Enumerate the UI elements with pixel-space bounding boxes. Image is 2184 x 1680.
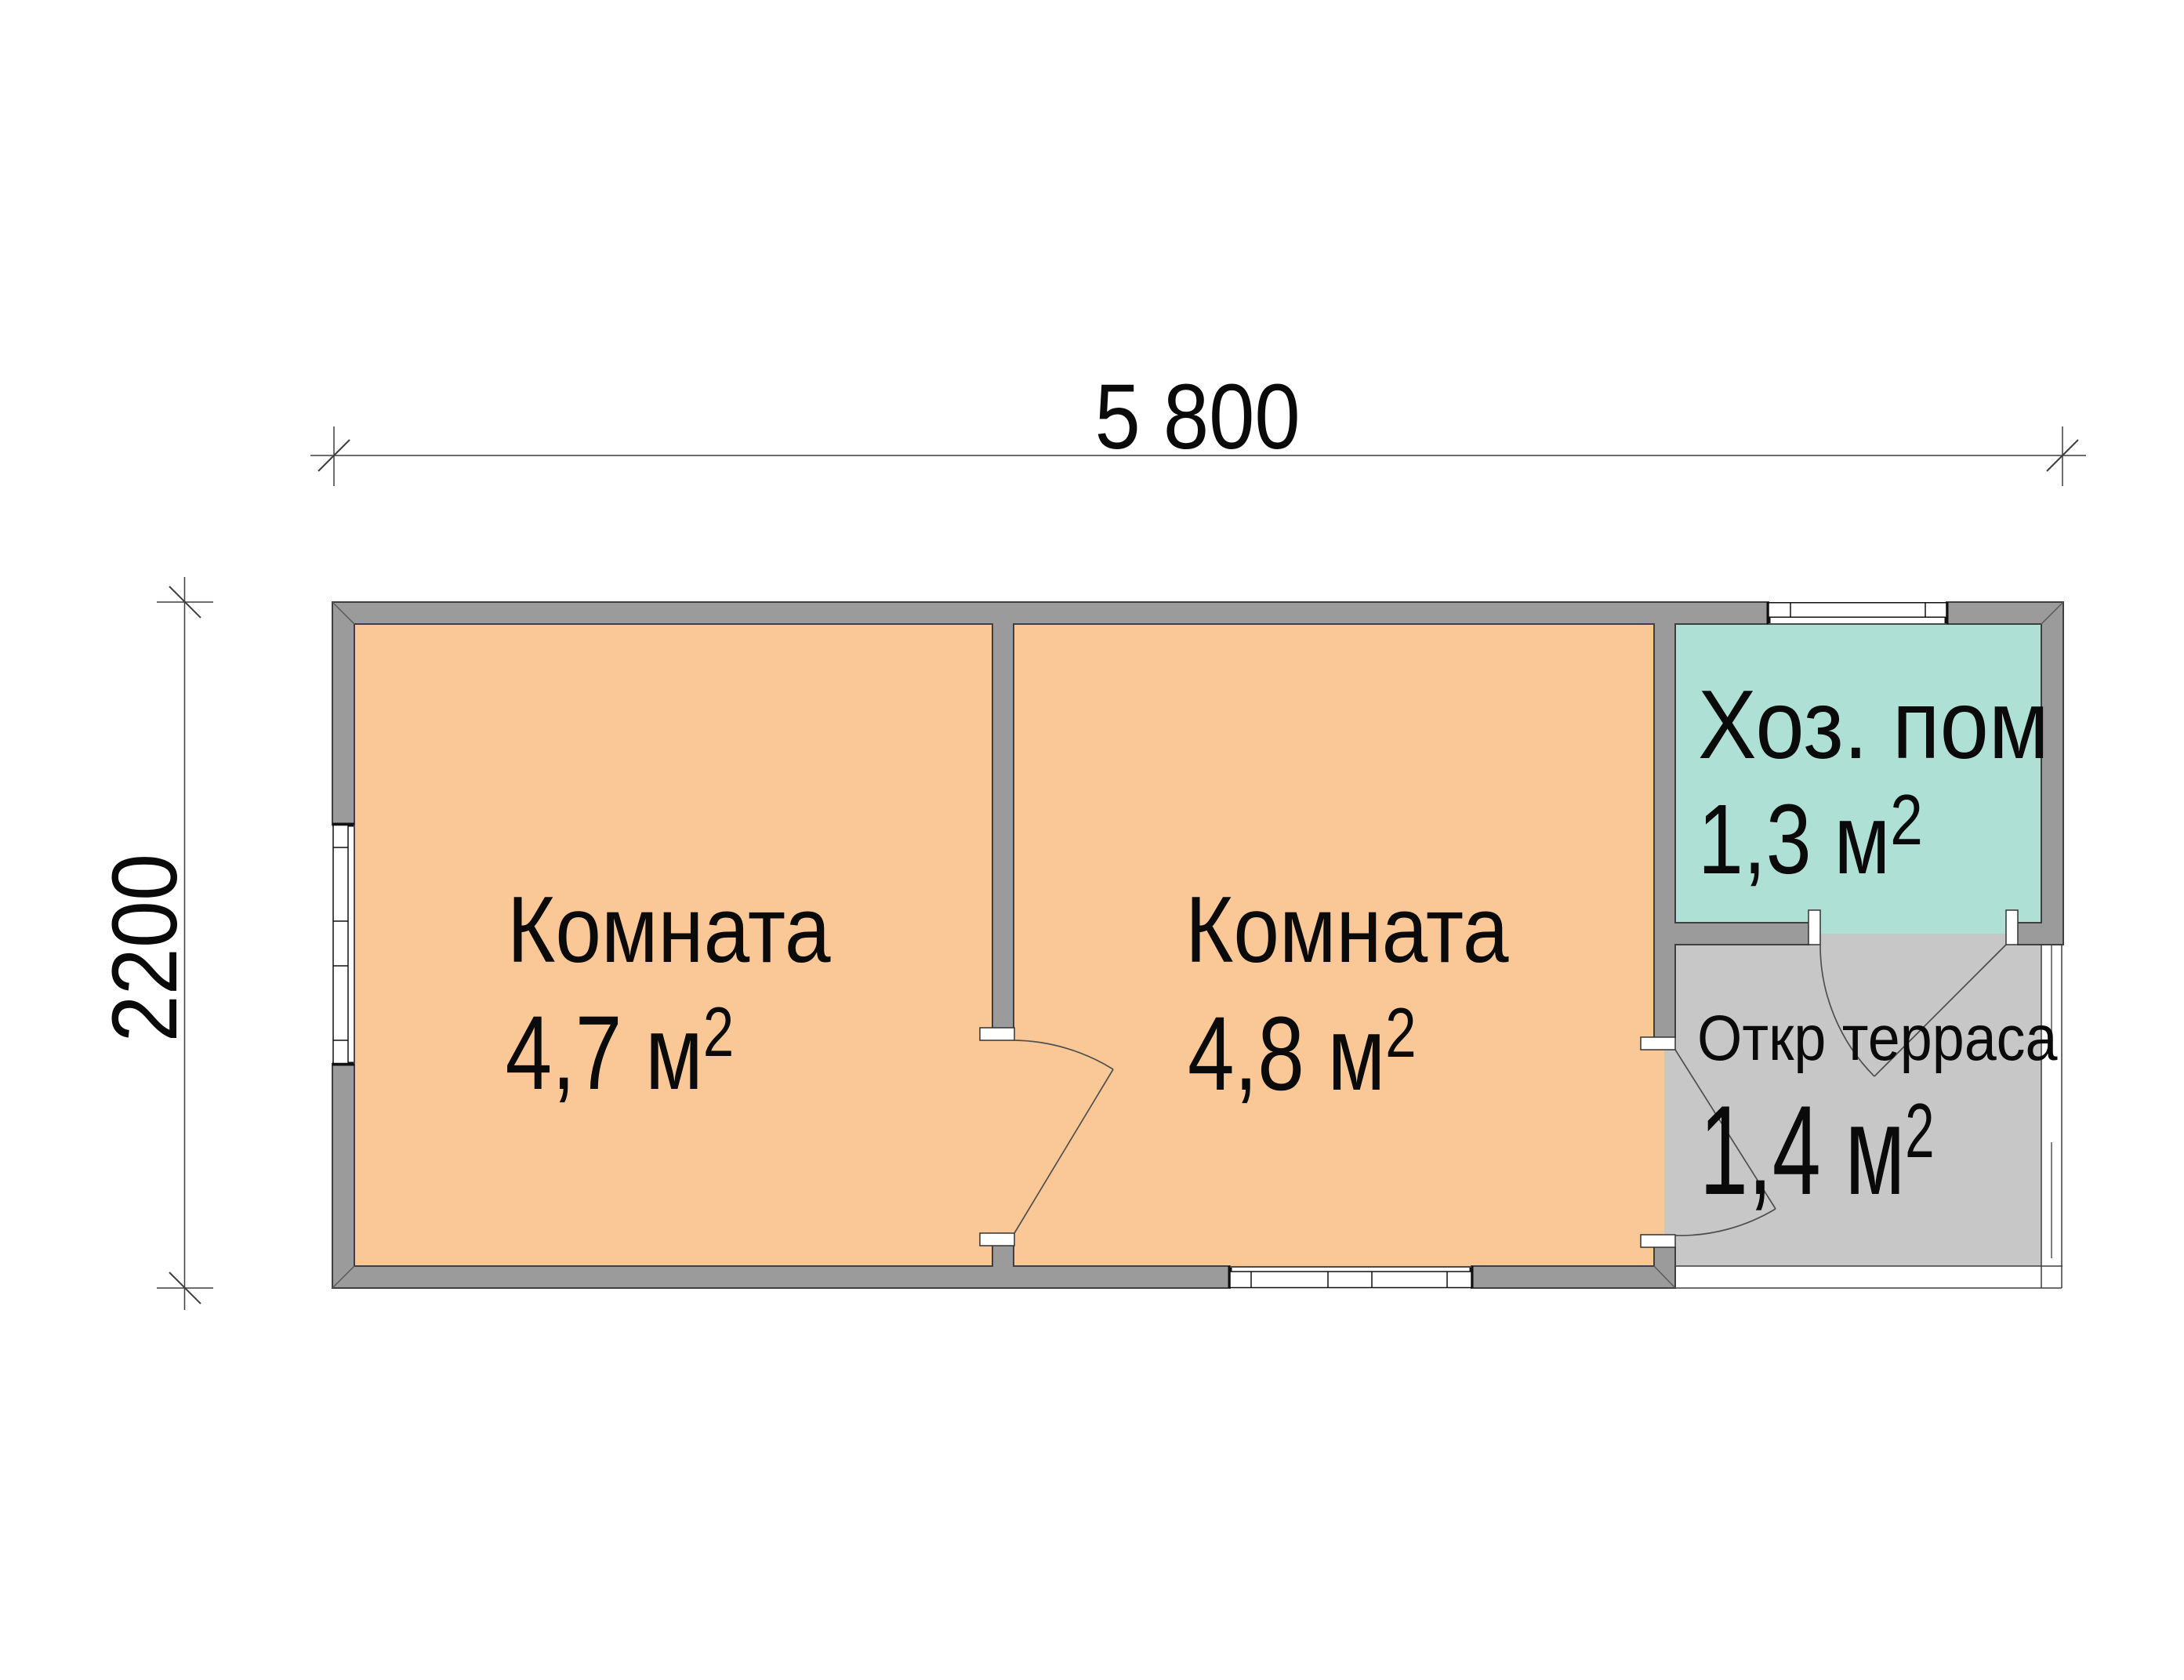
svg-text:1,4 м2: 1,4 м2 [1700, 1079, 1935, 1221]
svg-text:Откр терраса: Откр терраса [1697, 1001, 2058, 1074]
svg-text:2200: 2200 [93, 854, 196, 1043]
svg-text:Комната: Комната [1185, 877, 1509, 982]
svg-text:4,8 м2: 4,8 м2 [1188, 994, 1417, 1112]
svg-text:Комната: Комната [507, 877, 831, 982]
svg-text:5 800: 5 800 [1095, 365, 1301, 468]
svg-text:Хоз. пом: Хоз. пом [1698, 671, 2049, 780]
svg-text:1,3 м2: 1,3 м2 [1698, 779, 1923, 894]
svg-text:4,7 м2: 4,7 м2 [506, 993, 735, 1111]
